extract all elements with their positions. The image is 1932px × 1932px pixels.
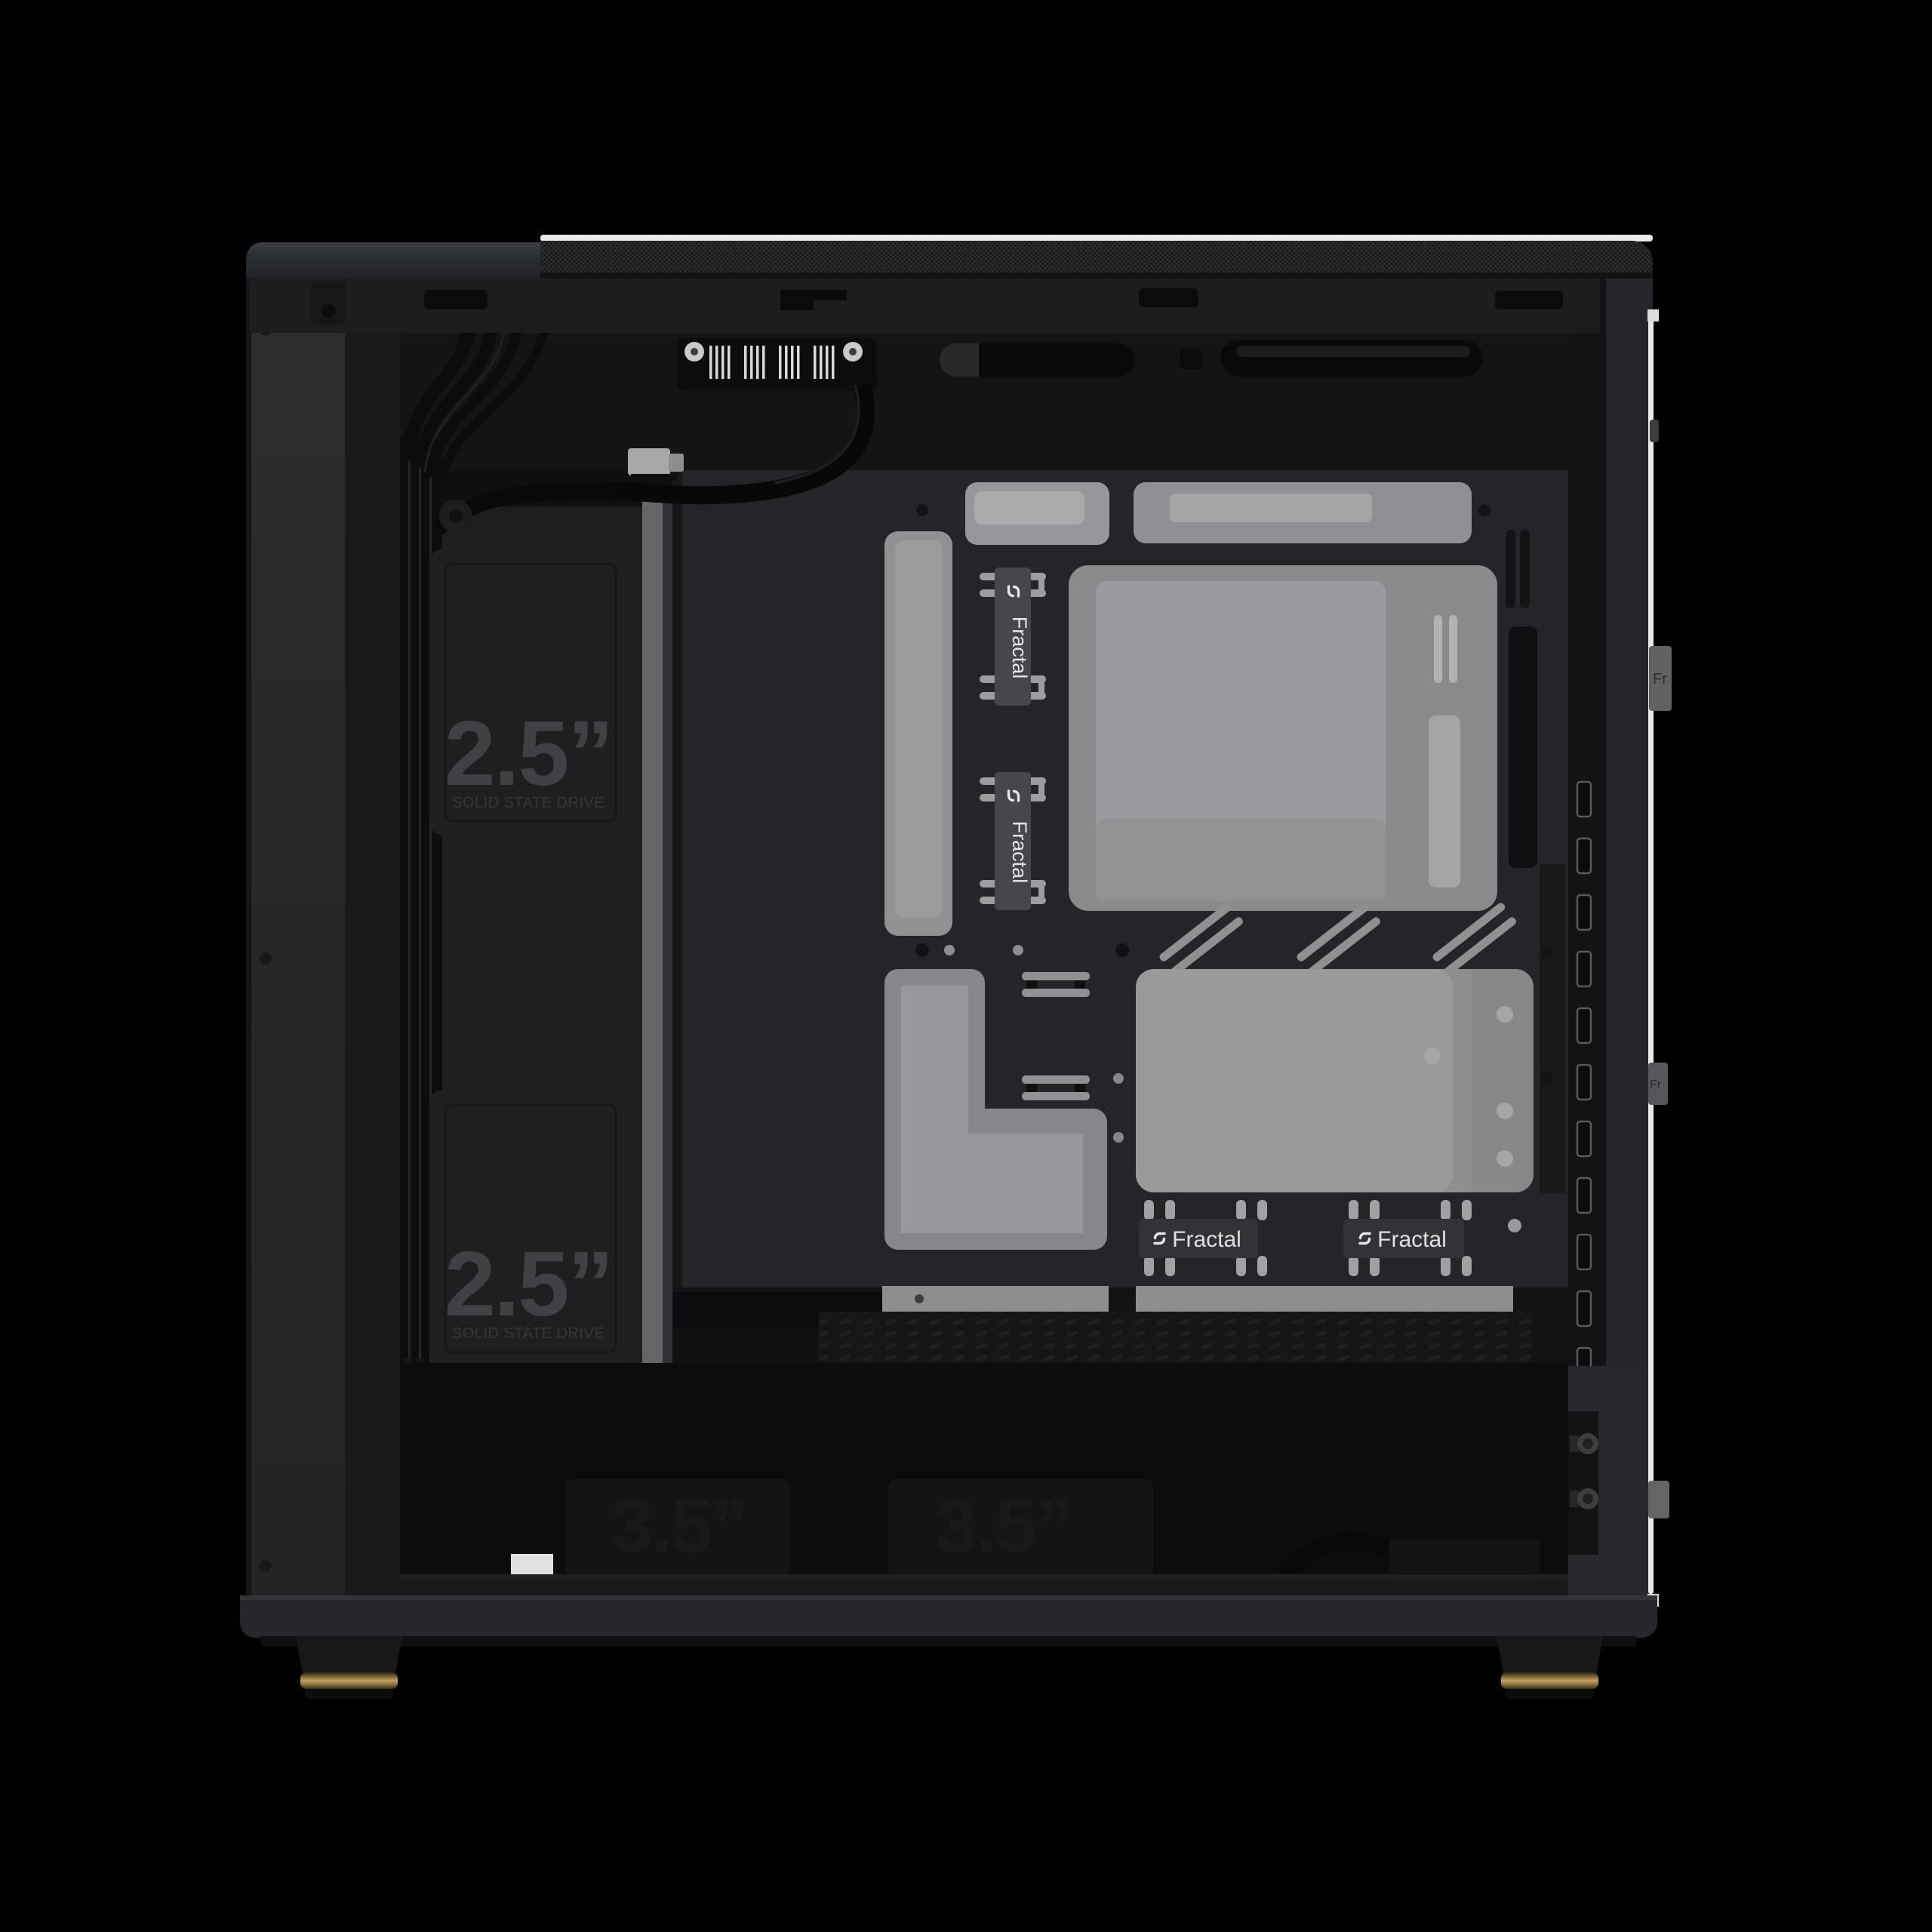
svg-text:Fr: Fr <box>1650 1078 1662 1091</box>
svg-text:Fractal: Fractal <box>1377 1227 1447 1252</box>
svg-text:SOLID STATE DRIVE: SOLID STATE DRIVE <box>452 1325 605 1342</box>
svg-text:Fractal: Fractal <box>1008 617 1031 679</box>
svg-text:3.5”: 3.5” <box>611 1484 747 1568</box>
svg-text:2.5”: 2.5” <box>445 1232 613 1335</box>
svg-text:Fractal: Fractal <box>1172 1227 1241 1252</box>
svg-text:Fr: Fr <box>1653 671 1667 688</box>
svg-text:3.5”: 3.5” <box>935 1484 1072 1568</box>
svg-text:2.5”: 2.5” <box>445 702 613 804</box>
svg-text:Fractal: Fractal <box>1008 821 1031 884</box>
svg-text:SOLID STATE DRIVE: SOLID STATE DRIVE <box>452 795 605 811</box>
